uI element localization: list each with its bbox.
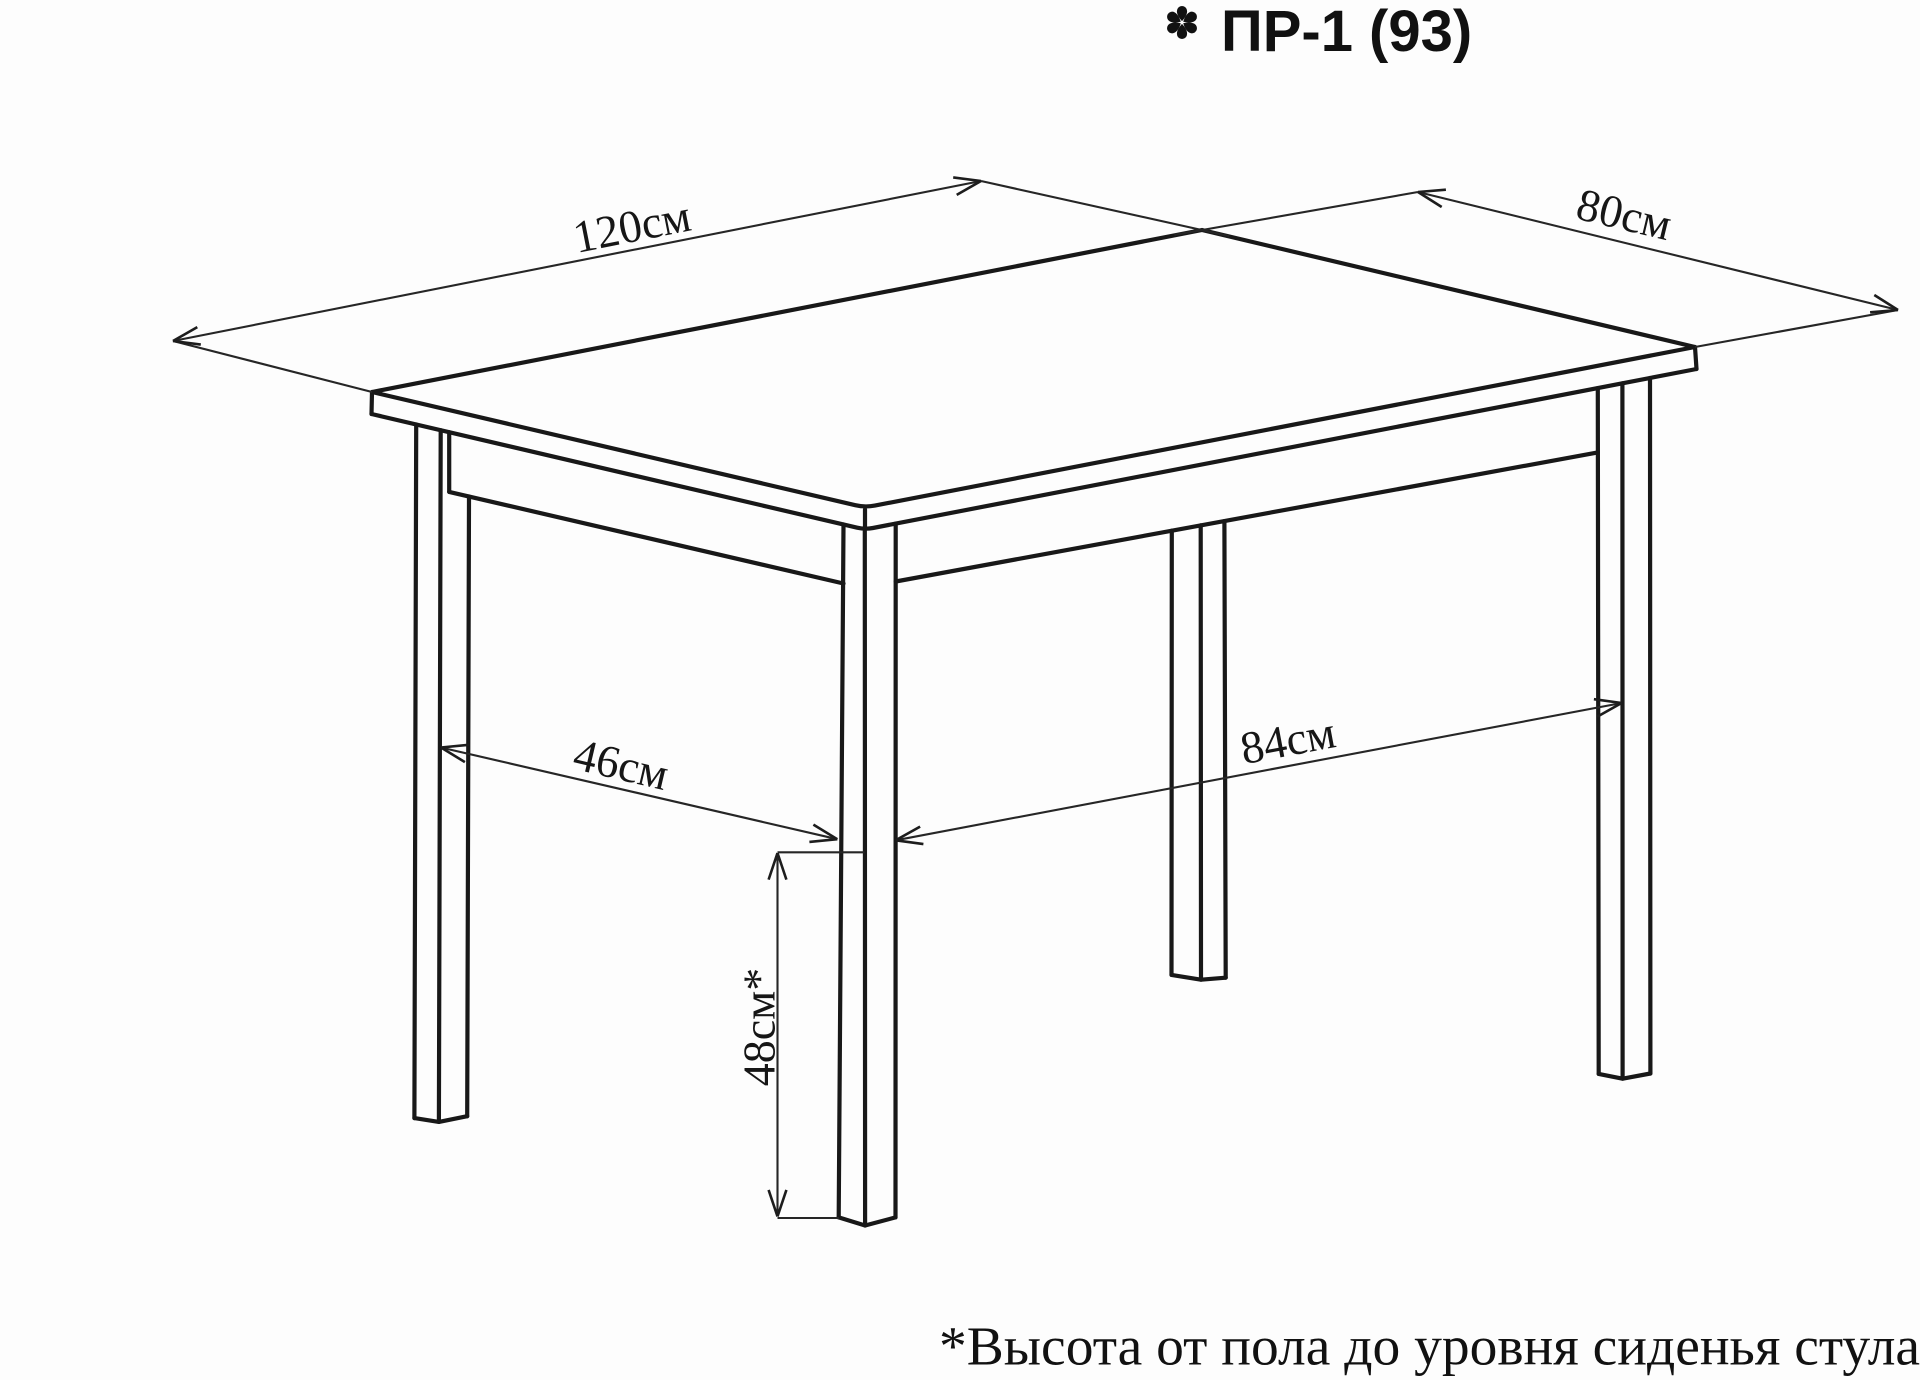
svg-text:ПР-1 (93): ПР-1 (93) [1221,0,1472,64]
svg-text:*Высота от пола до уровня сиде: *Высота от пола до уровня сиденья стула [939,1317,1920,1378]
svg-text:48см*: 48см* [734,968,785,1087]
